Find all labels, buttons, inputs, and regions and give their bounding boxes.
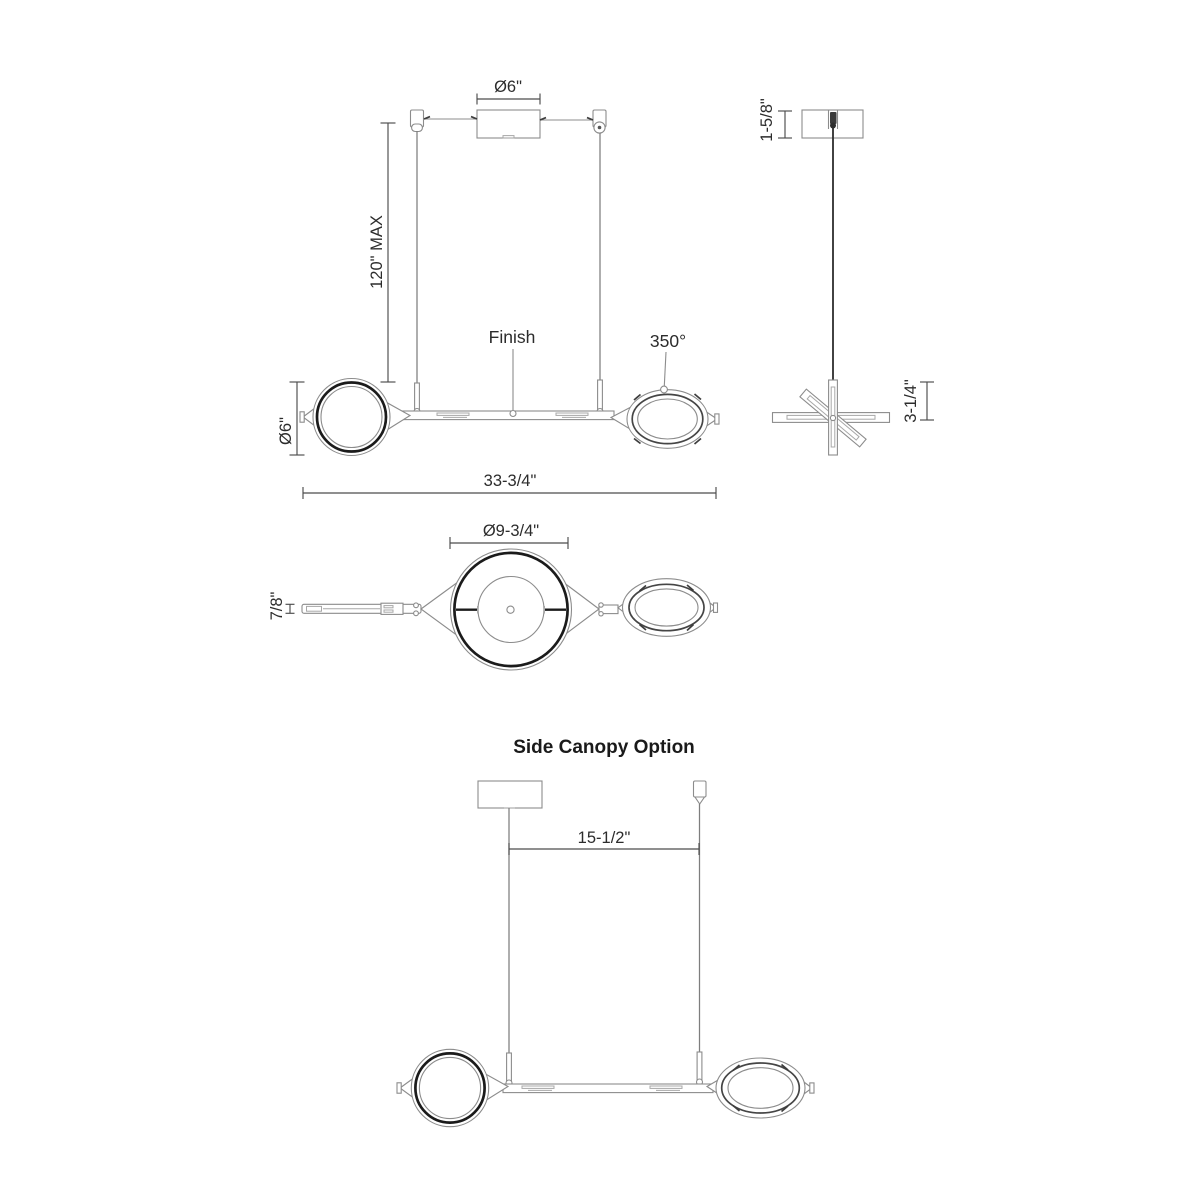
front-view: Ø6" (277, 78, 719, 499)
side-canopy-view: Side Canopy Option 15-1/2" (397, 737, 814, 1127)
max-suspension-label: 120" MAX (368, 215, 386, 289)
dim-large-shade-diameter: Ø9-3/4" (450, 522, 568, 549)
side-view: 1-5/8" 3-1/4 (758, 98, 934, 455)
dim-arm-width: 7/8" (268, 591, 295, 620)
rotation-pivot (661, 386, 668, 393)
option-left-shade (397, 1049, 508, 1126)
large-shade-diameter-label: Ø9-3/4" (483, 522, 539, 540)
finish-callout: Finish (489, 327, 536, 417)
rotation-callout: 350° (650, 331, 686, 386)
dim-canopy-diameter: Ø6" (477, 78, 540, 105)
cable-gripper (830, 112, 837, 124)
plan-small-shade (618, 579, 718, 637)
fixture-end-view (773, 380, 890, 455)
dim-fixture-height: 3-1/4" (902, 379, 934, 423)
right-shade (611, 386, 719, 448)
dim-canopy-height: 1-5/8" (758, 98, 792, 142)
center-stem (507, 606, 514, 613)
right-suspension-rod (597, 133, 603, 415)
fixture-bar (402, 411, 614, 420)
rotation-angle-label: 350° (650, 331, 686, 351)
offset-canopy (478, 781, 542, 808)
ceiling-canopy (477, 110, 540, 138)
arm-width-label: 7/8" (268, 591, 286, 620)
dim-canopy-offset: 15-1/2" (509, 829, 699, 855)
side-canopy-title: Side Canopy Option (513, 737, 695, 758)
left-suspension-rod (414, 131, 420, 415)
spec-sheet-drawing: Ø6" (0, 0, 1200, 1200)
fixture-height-label: 3-1/4" (902, 379, 920, 423)
dim-overall-width: 33-3/4" (303, 472, 716, 499)
dim-max-suspension: 120" MAX (368, 123, 396, 382)
left-hang-gripper (411, 110, 478, 132)
option-right-shade (707, 1058, 814, 1118)
overall-width-label: 33-3/4" (484, 472, 537, 490)
canopy-offset-label: 15-1/2" (578, 829, 631, 847)
remote-gripper (694, 781, 707, 804)
plan-view: Ø9-3/4" 7/8" (268, 522, 718, 670)
canopy-diameter-label: Ø6" (494, 78, 522, 96)
canopy-height-label: 1-5/8" (758, 98, 776, 142)
small-shade-diameter-label: Ø6" (277, 417, 295, 445)
finish-label: Finish (489, 327, 536, 347)
right-hang-gripper (540, 110, 606, 133)
left-shade (300, 379, 410, 456)
plan-connector-bar (599, 603, 618, 616)
plan-left-arm (302, 603, 421, 616)
plan-large-shade (421, 549, 599, 670)
option-fixture-bar (503, 1084, 713, 1093)
